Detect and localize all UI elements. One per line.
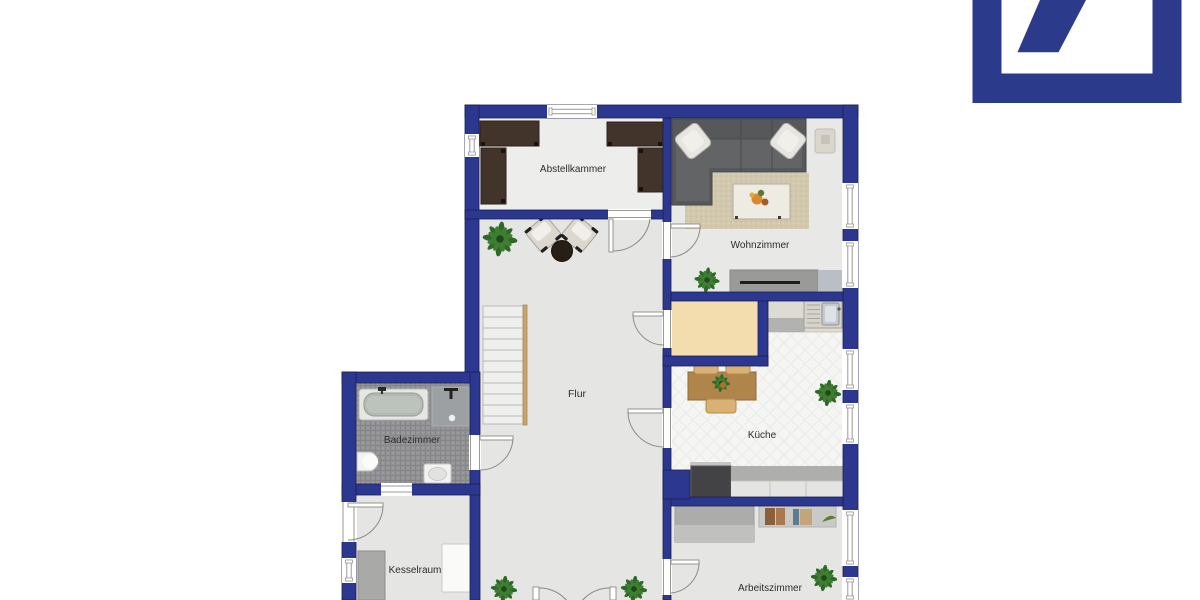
svg-text:Arbeitszimmer: Arbeitszimmer — [738, 583, 803, 594]
svg-text:Wohnzimmer: Wohnzimmer — [731, 240, 790, 251]
svg-text:Abstellkammer: Abstellkammer — [540, 164, 607, 175]
svg-text:Badezimmer: Badezimmer — [384, 435, 441, 446]
svg-text:Kesselraum: Kesselraum — [389, 565, 442, 576]
svg-text:Küche: Küche — [748, 430, 777, 441]
svg-text:Flur: Flur — [568, 388, 587, 400]
